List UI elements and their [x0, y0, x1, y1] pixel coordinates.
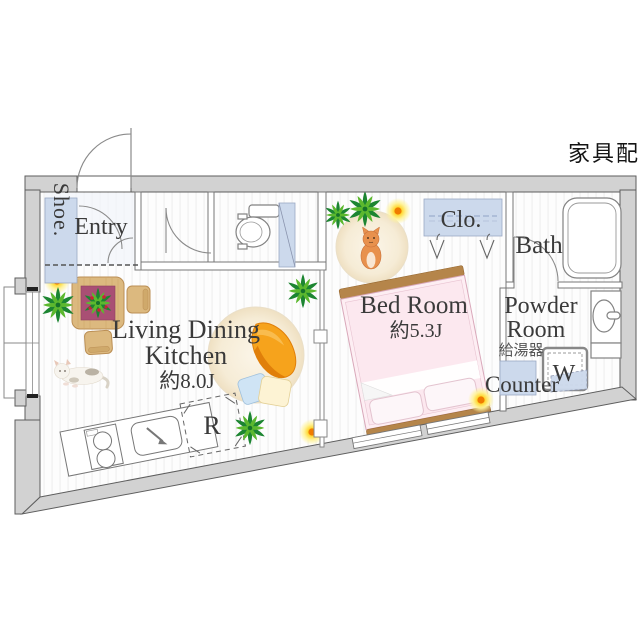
refrigerator-label: R	[203, 411, 221, 440]
closet-label: Clo.	[441, 207, 482, 233]
bath-label: Bath	[515, 232, 563, 259]
entry-door-opening	[77, 177, 131, 192]
floor-plan: R	[0, 0, 640, 640]
entry-label: Entry	[74, 214, 127, 240]
vanity-sink-icon	[591, 291, 621, 358]
left-window	[26, 287, 39, 398]
window-seal	[27, 287, 38, 291]
bedroom-label: Bed Room	[360, 292, 468, 319]
bedroom-size-label: 約5.3J	[390, 319, 443, 342]
ldk-label-line1: Living Dining	[112, 315, 260, 344]
powder-label-line2: Room	[507, 317, 566, 343]
powder-label-line1: Powder	[504, 293, 577, 319]
sun-icon	[385, 198, 411, 224]
page-title: 家具配置例	[568, 142, 640, 167]
bathtub-icon	[563, 198, 621, 278]
floor-plan-page: R	[0, 0, 640, 640]
ldk-size-label: 約8.0J	[159, 369, 214, 393]
ldk-label-line2: Kitchen	[145, 341, 227, 370]
counter-label: Counter	[485, 372, 559, 397]
window-seal	[27, 394, 38, 398]
chair-bottom	[84, 330, 113, 355]
floor-pillow-cream	[258, 376, 292, 408]
cat-sitting-icon	[361, 227, 381, 269]
chair-right	[127, 286, 150, 313]
water-heater-label: 給湯器	[498, 341, 543, 359]
shoe-label: Shoe.	[49, 183, 74, 238]
toilet-cabinet	[279, 203, 295, 267]
